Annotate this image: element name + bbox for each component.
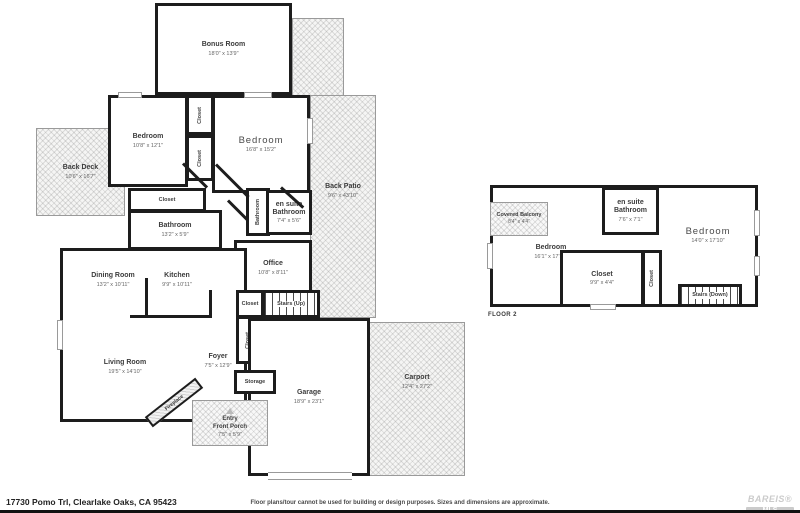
closet-2: Closet: [186, 135, 214, 181]
room-dims: 10'8" x 12'1": [133, 143, 163, 149]
room-dims: 9'6" x 43'10": [328, 193, 358, 199]
bathroom-main: Bathroom 13'2" x 5'9": [128, 210, 222, 250]
floor-plan-image: Back Patio 9'6" x 43'10" Back Deck 10'6"…: [0, 0, 800, 513]
bedroom-small: Bedroom 10'8" x 12'1": [108, 95, 188, 187]
property-address: 17730 Pomo Trl, Clearlake Oaks, CA 95423: [6, 497, 177, 507]
room-name: en suite Bathroom: [269, 201, 309, 218]
garage: Garage 18'9" x 23'1": [248, 318, 370, 476]
dining-room-label: Dining Room 13'2" x 10'11": [78, 268, 148, 292]
room-dims: 18'9" x 23'1": [294, 399, 324, 405]
wall-segment: [209, 290, 212, 318]
room-name: Back Patio: [325, 183, 361, 191]
room-name: Office: [263, 260, 283, 268]
room-name: Front Porch: [213, 424, 247, 431]
room-name: Closet: [197, 150, 203, 167]
closet-stairs: Closet: [236, 290, 264, 318]
window-marker: [590, 304, 616, 310]
closet-hall: Closet: [128, 188, 206, 212]
closet-vertical-f2: Closet: [642, 250, 662, 307]
room-name: Covered Balcony: [497, 212, 542, 219]
window-marker: [754, 210, 760, 236]
room-dims: 7'5" x 12'9": [204, 363, 231, 369]
room-dims: 9'9" x 4'4": [590, 280, 614, 286]
room-name: Dining Room: [91, 272, 135, 280]
room-name: Closet: [159, 197, 176, 204]
room-dims: 9'9" x 10'11": [162, 282, 192, 288]
window-marker: [754, 256, 760, 276]
room-dims: 10'8" x 8'11": [258, 270, 288, 276]
room-dims: 7'4" x 5'6": [277, 218, 301, 224]
entry-arrow-icon: [226, 408, 234, 414]
room-dims: 16'8" x 15'2": [246, 147, 276, 153]
window-marker: [487, 243, 493, 269]
window-marker: [307, 118, 313, 144]
room-dims: 14'0" x 17'10": [691, 238, 724, 244]
room-name: Back Deck: [63, 164, 98, 172]
room-dims: 7'5" x 5'9": [218, 432, 242, 438]
closet-f2: Closet 9'9" x 4'4": [560, 250, 644, 307]
bedroom-right-f2-label: Bedroom 14'0" x 17'10": [660, 215, 756, 255]
carport: [368, 322, 465, 476]
room-name: Living Room: [104, 359, 146, 367]
room-name: Foyer: [208, 353, 227, 361]
room-name: Closet: [197, 107, 203, 124]
room-name: Bedroom: [239, 135, 284, 146]
logo-line1: BAREIS®: [748, 494, 792, 504]
bonus-room: Bonus Room 18'0" x 13'9": [155, 3, 292, 95]
stairs-down: Stairs (Down): [678, 284, 742, 307]
entry-front-porch: Entry Front Porch 7'5" x 5'9": [192, 400, 268, 446]
room-name: en suite Bathroom: [605, 199, 656, 216]
room-dims: 12'4" x 27'2": [402, 384, 432, 390]
covered-balcony: Covered Balcony 8'4" x 4'4": [490, 202, 548, 236]
room-dims: 19'5" x 14'10": [108, 369, 141, 375]
ensuite-bathroom-f2: en suite Bathroom 7'6" x 7'1": [602, 187, 659, 235]
room-name: Closet: [591, 271, 612, 279]
window-marker: [118, 92, 142, 98]
room-name: Closet: [242, 301, 259, 308]
room-dims: 13'2" x 10'11": [97, 282, 130, 288]
living-room-label: Living Room 19'5" x 14'10": [90, 355, 160, 379]
closet-1: Closet: [186, 95, 214, 135]
window-marker: [57, 320, 63, 350]
floor2-tag: FLOOR 2: [488, 312, 517, 318]
garage-door-gap: [268, 472, 352, 480]
room-name: Garage: [297, 389, 321, 397]
disclaimer-text: Floor plans/tour cannot be used for buil…: [250, 500, 550, 506]
room-dims: 18'0" x 13'9": [208, 51, 238, 57]
room-dims: 13'2" x 5'9": [161, 232, 188, 238]
room-name: Bedroom: [133, 133, 164, 141]
stairs-up: Stairs (Up): [262, 290, 320, 318]
room-name: Carport: [404, 374, 429, 382]
room-name: Bathroom: [158, 222, 191, 230]
room-name: Bonus Room: [202, 41, 246, 49]
room-dims: 8'4" x 4'4": [508, 220, 530, 226]
back-patio-upper: [292, 18, 344, 96]
carport-label: Carport 12'4" x 27'2": [382, 370, 452, 394]
room-name: Stairs (Down): [690, 292, 729, 299]
room-name: Kitchen: [164, 272, 190, 280]
room-name: Stairs (Up): [275, 301, 307, 308]
room-name: Bedroom: [686, 226, 731, 237]
room-dims: 10'6" x 16'7": [65, 174, 95, 180]
storage: Storage: [234, 370, 276, 394]
wall-segment: [130, 315, 212, 318]
back-patio: [310, 95, 376, 318]
kitchen-label: Kitchen 9'9" x 10'11": [148, 268, 206, 292]
back-patio-label: Back Patio 9'6" x 43'10": [312, 180, 374, 202]
window-marker: [244, 92, 272, 98]
room-name: Closet: [649, 270, 655, 287]
room-dims: 7'6" x 7'1": [618, 217, 642, 223]
room-name: Entry: [222, 416, 237, 423]
room-name: Storage: [245, 379, 265, 386]
room-name: Bathroom: [255, 199, 261, 225]
